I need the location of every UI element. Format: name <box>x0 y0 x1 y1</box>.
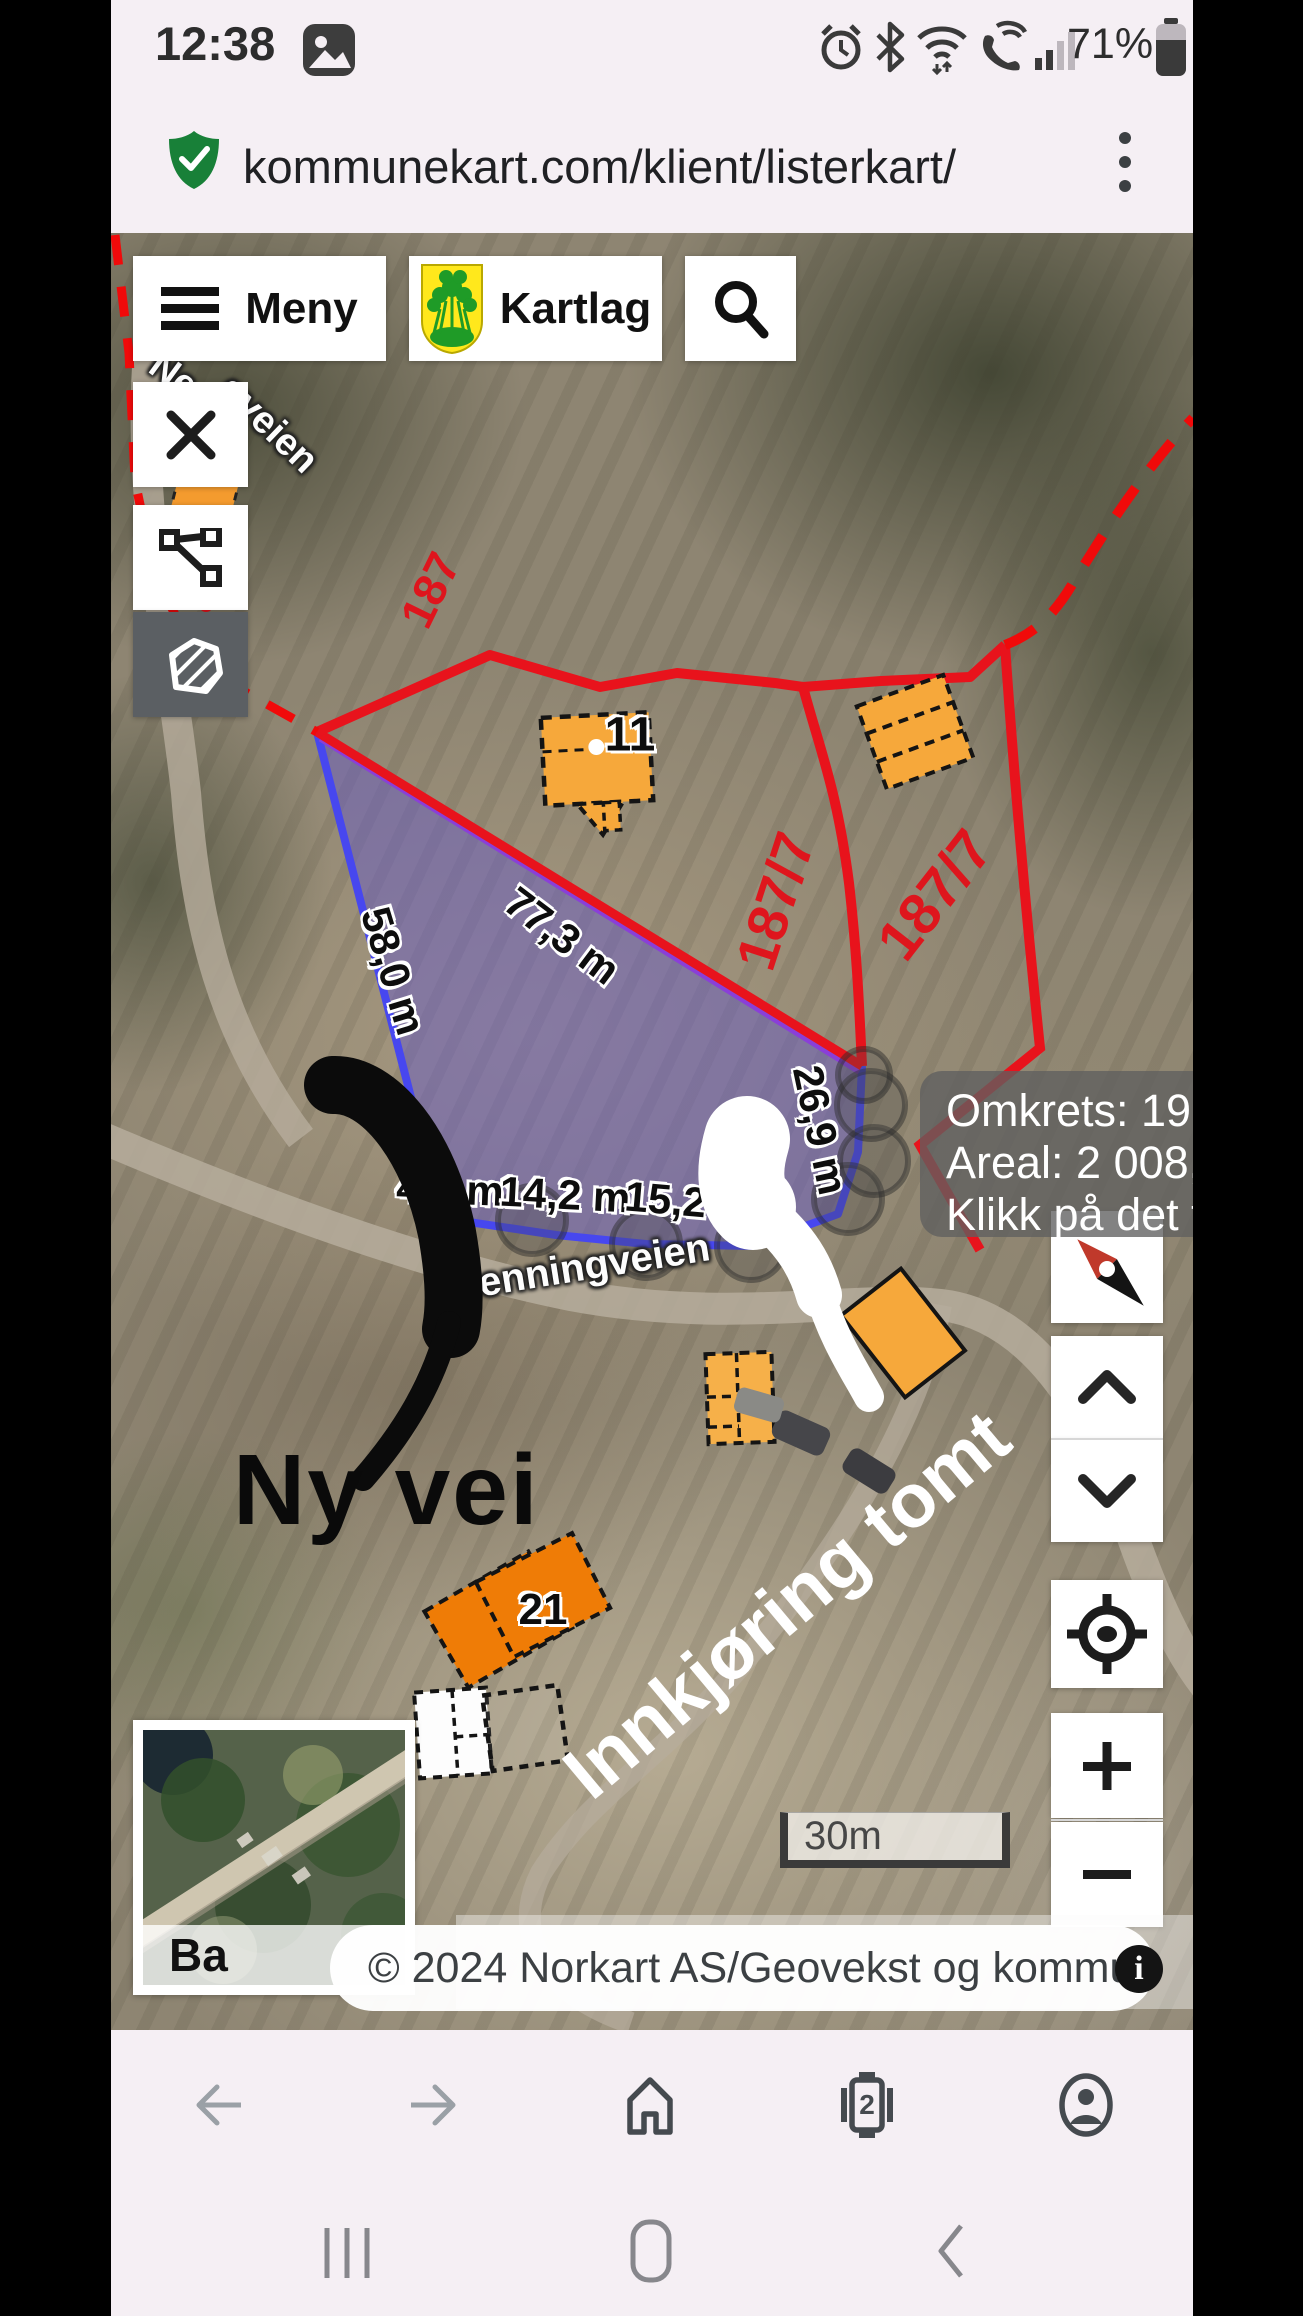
layers-button[interactable]: Kartlag <box>409 256 662 361</box>
android-home-icon[interactable] <box>629 2218 673 2284</box>
menu-icon <box>161 287 219 331</box>
zoom-in-icon <box>1079 1738 1135 1794</box>
alarm-icon <box>817 22 865 74</box>
perimeter-value: Omkrets: 199,9 m <box>946 1085 1193 1137</box>
measure-line-button[interactable] <box>133 505 248 610</box>
clock: 12:38 <box>155 16 275 71</box>
municipality-crest-icon <box>420 263 484 355</box>
zoom-out-icon <box>1079 1869 1135 1881</box>
attribution-text: © 2024 Norkart AS/Geovekst og kommunene/… <box>368 1944 1155 1993</box>
url-text[interactable]: kommunekart.com/klient/listerkart/ <box>243 139 956 194</box>
menu-button-label: Meny <box>245 284 357 334</box>
gallery-icon <box>301 22 357 78</box>
layers-button-label: Kartlag <box>500 284 652 334</box>
address-bar[interactable]: kommunekart.com/klient/listerkart/ <box>111 115 1193 227</box>
zoom-out-button[interactable] <box>1051 1822 1163 1927</box>
tab-count: 2 <box>859 2089 875 2120</box>
battery-percent: 71% <box>1067 20 1153 69</box>
status-bar: 12:38 71% <box>111 0 1193 115</box>
home-icon[interactable] <box>618 2070 682 2140</box>
chevron-up-icon <box>1073 1367 1141 1407</box>
chevron-down-icon <box>1073 1471 1141 1511</box>
background-layer-label: Ba <box>169 1928 228 1982</box>
area-value: Areal: 2 008,6 m² <box>946 1137 1193 1189</box>
scale-label: 30m <box>804 1814 882 1859</box>
measure-area-icon <box>158 633 224 697</box>
android-navbar <box>111 2190 1193 2316</box>
back-icon[interactable] <box>187 2073 251 2137</box>
overflow-menu-icon[interactable] <box>1113 129 1137 195</box>
measurement-panel: Omkrets: 199,9 m Areal: 2 008,6 m² Klikk… <box>920 1071 1193 1237</box>
recents-icon[interactable] <box>319 2222 375 2284</box>
battery-icon <box>1153 16 1189 78</box>
shield-check-icon <box>167 129 221 191</box>
forward-icon[interactable] <box>401 2073 465 2137</box>
annotation-ny-vei: Ny vei <box>233 1433 540 1548</box>
measure-hint: Klikk på det først <box>946 1189 1193 1241</box>
phone-screen: 12:38 71% <box>111 0 1193 2316</box>
profile-icon[interactable] <box>1054 2070 1118 2140</box>
attribution: © 2024 Norkart AS/Geovekst og kommunene/… <box>330 1925 1155 2011</box>
wifi-icon <box>913 20 971 76</box>
search-button[interactable] <box>685 256 796 361</box>
search-icon <box>710 278 772 340</box>
scale-bar: 30m <box>780 1812 1010 1868</box>
measure-line-icon <box>159 528 223 588</box>
phone-screenshot: 12:38 71% <box>0 0 1303 2316</box>
pan-up-button[interactable] <box>1051 1336 1163 1438</box>
close-icon <box>165 409 217 461</box>
locate-icon <box>1061 1588 1153 1680</box>
browser-navbar: 2 <box>111 2030 1193 2190</box>
tabs-icon[interactable]: 2 <box>835 2070 899 2140</box>
menu-button[interactable]: Meny <box>133 256 386 361</box>
info-icon[interactable]: i <box>1115 1945 1163 1993</box>
map-viewport[interactable]: 58,0 m 77,3 m 4,7 m 14,2 m 15,2 m 26,9 m… <box>111 233 1193 2030</box>
measure-area-button[interactable] <box>133 612 248 717</box>
wifi-call-icon <box>975 20 1029 74</box>
bluetooth-icon <box>873 20 907 74</box>
zoom-in-button[interactable] <box>1051 1713 1163 1818</box>
pan-down-button[interactable] <box>1051 1440 1163 1542</box>
android-back-icon[interactable] <box>933 2220 969 2282</box>
locate-button[interactable] <box>1051 1580 1163 1688</box>
close-measure-button[interactable] <box>133 382 248 487</box>
